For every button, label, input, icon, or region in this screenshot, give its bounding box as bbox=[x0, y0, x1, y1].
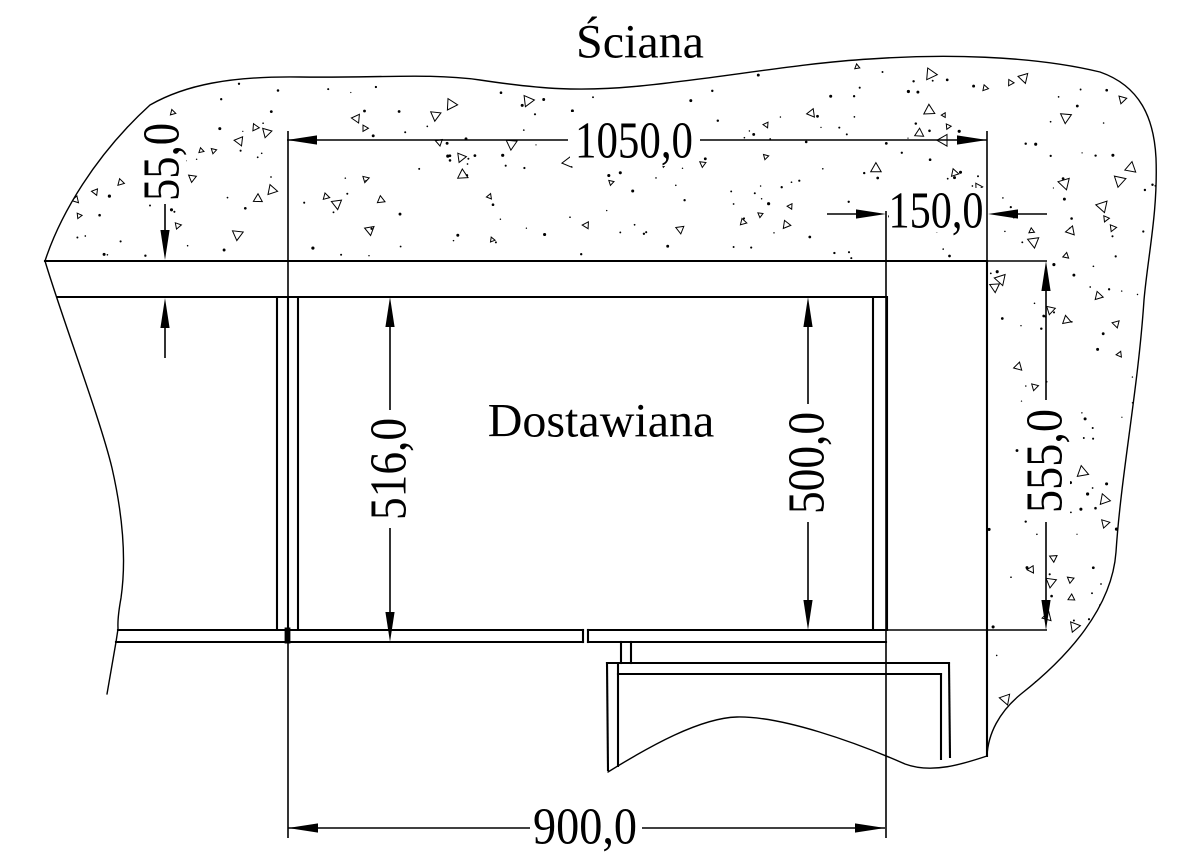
hatch-dot bbox=[1008, 53, 1010, 55]
hatch-triangle bbox=[1116, 351, 1121, 357]
hatch-dot bbox=[523, 167, 525, 169]
hatch-dot bbox=[1053, 311, 1055, 313]
hatch-triangle bbox=[110, 77, 115, 83]
hatch-triangle bbox=[1129, 617, 1139, 627]
hatch-dot bbox=[1130, 691, 1132, 693]
hatch-dot bbox=[1144, 549, 1147, 552]
hatch-triangle bbox=[999, 694, 1009, 705]
hatch-triangle bbox=[175, 223, 181, 229]
hatch-dot bbox=[1034, 303, 1036, 305]
hatch-dot bbox=[791, 181, 793, 183]
dimension-arrowhead bbox=[803, 600, 812, 630]
hatch-dot bbox=[848, 251, 850, 253]
hatch-dot bbox=[704, 157, 707, 160]
hatch-dot bbox=[1144, 189, 1146, 191]
hatch-dot bbox=[929, 158, 932, 161]
hatch-dot bbox=[398, 110, 401, 113]
hatch-triangle bbox=[952, 169, 959, 177]
hatch-dot bbox=[551, 66, 554, 69]
hatch-dot bbox=[1036, 534, 1038, 536]
hatch-dot bbox=[1144, 82, 1146, 84]
hatch-dot bbox=[553, 65, 556, 68]
dimension-arrowhead bbox=[288, 823, 318, 832]
hatch-dot bbox=[1134, 714, 1136, 716]
hatch-dot bbox=[1093, 265, 1095, 267]
hatch-triangle bbox=[331, 200, 341, 210]
hatch-dot bbox=[972, 85, 975, 88]
hatch-dot bbox=[61, 87, 64, 90]
hatch-dot bbox=[614, 71, 617, 74]
hatch-dot bbox=[928, 130, 931, 133]
hatch-triangle bbox=[1046, 578, 1056, 588]
hatch-dot bbox=[619, 231, 621, 233]
hatch-triangle bbox=[764, 155, 769, 160]
hatch-dot bbox=[607, 174, 610, 177]
dimension-label-wall-to-front: 555,0 bbox=[1017, 409, 1074, 513]
hatch-triangle bbox=[542, 72, 548, 77]
hatch-triangle bbox=[924, 104, 935, 114]
hatch-triangle bbox=[1071, 622, 1081, 632]
hatch-dot bbox=[1017, 744, 1020, 747]
hatch-dot bbox=[750, 247, 752, 249]
hatch-triangle bbox=[676, 226, 684, 234]
hatch-dot bbox=[932, 80, 934, 82]
hatch-dot bbox=[1083, 437, 1085, 439]
hatch-dot bbox=[1092, 438, 1094, 440]
hatch-triangle bbox=[1100, 494, 1110, 505]
hatch-dot bbox=[1052, 263, 1055, 266]
hatch-dot bbox=[274, 62, 276, 64]
hatch-dot bbox=[1056, 705, 1059, 708]
hatch-dot bbox=[161, 69, 163, 71]
hatch-dot bbox=[833, 252, 835, 254]
hatch-dot bbox=[854, 116, 856, 118]
hatch-dot bbox=[1142, 612, 1144, 614]
hatch-dot bbox=[859, 87, 861, 89]
hatch-dot bbox=[808, 236, 811, 239]
hatch-triangle bbox=[365, 227, 374, 236]
hatch-triangle bbox=[1061, 114, 1072, 124]
hatch-dot bbox=[270, 110, 273, 113]
hatch-dot bbox=[453, 240, 455, 242]
hatch-dot bbox=[457, 60, 458, 61]
hatch-dot bbox=[1133, 633, 1135, 635]
hatch-dot bbox=[1125, 692, 1128, 695]
hatch-dot bbox=[733, 246, 735, 248]
hatch-dot bbox=[399, 213, 402, 216]
dimension-arrowhead bbox=[957, 135, 987, 144]
hatch-triangle bbox=[95, 122, 104, 131]
hatch-dot bbox=[218, 127, 221, 130]
hatch-dot bbox=[1001, 317, 1004, 320]
hatch-dot bbox=[1007, 710, 1010, 713]
hatch-triangle bbox=[234, 137, 243, 146]
dimension-arrowhead bbox=[803, 297, 812, 327]
hatch-dot bbox=[846, 133, 848, 135]
hatch-dot bbox=[359, 71, 362, 74]
hatch-dot bbox=[363, 110, 366, 113]
hatch-dot bbox=[1091, 592, 1093, 594]
hatch-dot bbox=[1050, 121, 1052, 123]
hatch-triangle bbox=[1096, 201, 1107, 213]
hatch-dot bbox=[1126, 707, 1129, 710]
hatch-triangle bbox=[263, 128, 272, 137]
hatch-dot bbox=[1078, 641, 1079, 642]
hatch-dot bbox=[534, 113, 536, 115]
hatch-triangle bbox=[915, 128, 924, 136]
hatch-dot bbox=[1025, 385, 1027, 387]
hatch-dot bbox=[223, 249, 226, 252]
hatch-dot bbox=[959, 171, 962, 174]
hatch-dot bbox=[93, 124, 95, 126]
hatch-dot bbox=[521, 104, 524, 107]
hatch-dot bbox=[1094, 154, 1096, 156]
hatch-triangle bbox=[170, 110, 175, 115]
hatch-dot bbox=[277, 89, 280, 92]
hatch-dot bbox=[108, 195, 111, 198]
dimension-cabinet-width: 900,0 bbox=[288, 799, 885, 856]
hatch-dot bbox=[643, 233, 645, 235]
hatch-dot bbox=[744, 137, 746, 139]
hatch-dot bbox=[505, 165, 507, 167]
hatch-triangle bbox=[871, 163, 882, 172]
hatch-triangle bbox=[491, 237, 496, 242]
hatch-dot bbox=[838, 127, 840, 129]
hatch-dot bbox=[853, 95, 855, 97]
hatch-dot bbox=[760, 185, 762, 187]
hatch-dot bbox=[1076, 105, 1079, 108]
hatch-dot bbox=[754, 192, 756, 194]
hatch-dot bbox=[1088, 618, 1090, 620]
hatch-dot bbox=[495, 241, 497, 243]
hatch-triangle bbox=[927, 68, 938, 80]
hatch-triangle bbox=[199, 148, 204, 153]
technical-drawing-page: 1050,0 55,0 150,0 516,0 500,0 bbox=[0, 0, 1200, 858]
hatch-dot bbox=[730, 190, 732, 192]
hatch-dot bbox=[631, 189, 634, 192]
hatch-dot bbox=[977, 175, 979, 177]
hatch-dot bbox=[1120, 511, 1123, 514]
hatch-triangle bbox=[363, 176, 369, 182]
hatch-triangle bbox=[524, 96, 534, 107]
hatch-dot bbox=[240, 150, 242, 152]
dimension-label-cabinet-depth: 500,0 bbox=[779, 412, 836, 514]
dimension-arrowhead bbox=[855, 823, 885, 832]
hatch-triangle bbox=[1068, 594, 1075, 600]
hatch-dot bbox=[76, 237, 78, 239]
hatch-dot bbox=[958, 130, 961, 133]
hatch-triangle bbox=[1063, 253, 1069, 259]
hatch-dot bbox=[1092, 427, 1094, 429]
hatch-triangle bbox=[1014, 362, 1022, 370]
hatch-triangle bbox=[1110, 225, 1116, 232]
hatch-dot bbox=[404, 131, 406, 133]
hatch-dot bbox=[340, 254, 342, 256]
hatch-dot bbox=[717, 119, 719, 121]
hatch-triangle bbox=[1066, 226, 1075, 235]
hatch-dot bbox=[767, 202, 770, 205]
hatch-dot bbox=[1096, 702, 1097, 703]
break-lines bbox=[45, 261, 987, 772]
hatch-dot bbox=[1070, 217, 1073, 220]
hatch-triangle bbox=[253, 194, 262, 202]
hatch-dot bbox=[761, 198, 763, 200]
hatch-dot bbox=[1061, 717, 1063, 719]
hatch-dot bbox=[1094, 694, 1096, 696]
hatch-dot bbox=[1120, 543, 1122, 545]
hatch-dot bbox=[675, 185, 677, 187]
hatch-dot bbox=[242, 131, 243, 132]
hatch-dot bbox=[170, 208, 173, 211]
cabinet-label: Dostawiana bbox=[488, 395, 715, 448]
hatch-dot bbox=[1020, 325, 1021, 326]
hatch-dot bbox=[1105, 89, 1108, 92]
hatch-triangle bbox=[1102, 520, 1110, 528]
hatch-triangle bbox=[77, 213, 82, 218]
hatch-dot bbox=[1109, 58, 1111, 60]
hatch-dot bbox=[953, 176, 956, 179]
hatch-triangle bbox=[1047, 306, 1056, 314]
hatch-dot bbox=[1151, 183, 1153, 185]
hatch-dot bbox=[500, 219, 501, 220]
dimension-overall-width: 1050,0 bbox=[287, 113, 987, 170]
section-mark bbox=[285, 628, 291, 644]
hatch-dot bbox=[350, 92, 351, 93]
hatch-dot bbox=[1085, 671, 1086, 672]
hatch-triangle bbox=[941, 113, 945, 118]
hatch-triangle bbox=[700, 162, 706, 168]
hatch-triangle bbox=[783, 220, 791, 228]
hatch-triangle bbox=[268, 185, 278, 195]
hatch-dot bbox=[1050, 155, 1052, 157]
hatch-dot bbox=[262, 122, 264, 124]
hatch-dot bbox=[94, 113, 97, 116]
hatch-dot bbox=[238, 83, 240, 85]
hatch-dot bbox=[915, 122, 917, 124]
hatch-dot bbox=[1021, 400, 1022, 401]
hatch-dot bbox=[1105, 482, 1108, 485]
hatch-dot bbox=[992, 625, 995, 628]
hatch-dot bbox=[1021, 241, 1023, 243]
hatch-dot bbox=[863, 172, 865, 174]
hatch-dot bbox=[388, 53, 390, 55]
hatch-dot bbox=[345, 177, 347, 179]
hatch-dot bbox=[580, 253, 582, 255]
hatch-dot bbox=[885, 142, 888, 145]
hatch-triangle bbox=[1129, 659, 1137, 668]
break-line-left bbox=[45, 261, 124, 694]
hatch-dot bbox=[781, 186, 783, 188]
hatch-triangle bbox=[792, 56, 799, 63]
hatch-dot bbox=[500, 91, 503, 94]
hatch-dot bbox=[634, 224, 636, 226]
dimension-side-clearance: 150,0 bbox=[827, 183, 1047, 240]
hatch-dot bbox=[619, 171, 622, 174]
hatch-dot bbox=[948, 255, 951, 258]
hatch-dot bbox=[327, 88, 329, 90]
hatch-dot bbox=[990, 273, 992, 275]
hatch-dot bbox=[1084, 417, 1087, 420]
hatch-dot bbox=[1139, 563, 1141, 565]
hatch-dot bbox=[1081, 152, 1082, 153]
hatch-dot bbox=[196, 159, 197, 160]
hatch-dot bbox=[1004, 721, 1005, 722]
dimension-arrowhead bbox=[1041, 261, 1050, 291]
hatch-triangle bbox=[787, 204, 792, 210]
hatch-dot bbox=[1111, 154, 1114, 157]
hatch-dot bbox=[946, 79, 949, 82]
dimension-label-overall-width: 1050,0 bbox=[575, 113, 693, 170]
hatch-triangle bbox=[1104, 216, 1110, 222]
dimension-cabinet-depth: 500,0 bbox=[779, 297, 836, 630]
hatch-dot bbox=[375, 86, 377, 88]
hatch-dot bbox=[689, 99, 692, 102]
hatch-dot bbox=[400, 246, 402, 248]
hatch-dot bbox=[1003, 718, 1005, 720]
lower-left-outer bbox=[607, 663, 608, 770]
dimension-arrowhead bbox=[287, 135, 317, 144]
hatch-dot bbox=[749, 130, 750, 131]
hatch-dot bbox=[1142, 667, 1145, 670]
hatch-dot bbox=[592, 96, 594, 98]
hatch-dot bbox=[467, 163, 469, 165]
hatch-dot bbox=[526, 228, 527, 229]
hatch-triangle bbox=[116, 85, 125, 95]
hatch-triangle bbox=[1058, 178, 1069, 189]
hatch-dot bbox=[1002, 197, 1004, 199]
hatch-triangle bbox=[983, 85, 989, 91]
hatch-dot bbox=[907, 137, 908, 138]
hatch-dot bbox=[1103, 616, 1105, 618]
hatch-dot bbox=[711, 90, 713, 92]
hatch-dot bbox=[311, 247, 314, 250]
hatch-dot bbox=[1034, 143, 1037, 146]
hatch-triangle bbox=[377, 196, 385, 203]
hatch-dot bbox=[1115, 255, 1117, 257]
hatch-triangle bbox=[740, 218, 746, 224]
hatch-dot bbox=[542, 98, 545, 101]
hatch-triangle bbox=[1039, 692, 1043, 697]
hatch-dot bbox=[733, 203, 735, 205]
hatch-dot bbox=[492, 203, 495, 206]
hatch-triangle bbox=[1081, 716, 1086, 720]
hatch-dot bbox=[270, 176, 272, 178]
hatch-triangle bbox=[458, 153, 467, 162]
hatch-dot bbox=[907, 90, 910, 93]
hatch-dot bbox=[773, 232, 774, 233]
hatch-dot bbox=[1040, 327, 1042, 329]
hatch-dot bbox=[144, 255, 146, 257]
hatch-dot bbox=[816, 115, 819, 118]
hatch-triangle bbox=[807, 109, 815, 117]
hatch-dot bbox=[1024, 142, 1026, 144]
hatch-dot bbox=[543, 233, 546, 236]
hatch-dot bbox=[98, 214, 101, 217]
hatch-dot bbox=[100, 79, 102, 81]
dimension-label-side-clearance: 150,0 bbox=[889, 183, 984, 240]
hatch-dot bbox=[1143, 611, 1144, 612]
hatch-dot bbox=[339, 52, 340, 53]
hatch-dot bbox=[1102, 332, 1105, 335]
hatch-dot bbox=[1138, 747, 1140, 749]
hatch-dot bbox=[1080, 89, 1082, 91]
hatch-triangle bbox=[351, 114, 359, 123]
hatch-dot bbox=[346, 193, 348, 195]
hatch-dot bbox=[1100, 583, 1102, 585]
hatch-dot bbox=[1120, 733, 1121, 734]
hatch-dot bbox=[418, 168, 420, 170]
hatch-dot bbox=[279, 73, 282, 76]
hatch-dot bbox=[220, 98, 222, 100]
hatch-dot bbox=[1063, 198, 1066, 201]
hatch-dot bbox=[120, 240, 122, 242]
hatch-dot bbox=[876, 177, 879, 180]
hatch-dot bbox=[752, 133, 755, 136]
dimension-arrowhead bbox=[160, 230, 169, 260]
hatch-dot bbox=[1121, 585, 1123, 587]
hatch-dot bbox=[458, 72, 460, 74]
hatch-triangle bbox=[1032, 384, 1039, 391]
hatch-dot bbox=[848, 201, 850, 203]
hatch-dot bbox=[109, 77, 111, 79]
hatch-dot bbox=[605, 79, 607, 81]
hatch-dot bbox=[368, 255, 369, 256]
hatch-dot bbox=[61, 137, 63, 139]
hatch-triangle bbox=[1063, 315, 1071, 323]
dimension-arrowhead bbox=[385, 612, 394, 642]
hatch-dot bbox=[1106, 735, 1109, 738]
dimension-wall-gap: 55,0 bbox=[134, 123, 191, 358]
lower-right-outer bbox=[949, 663, 950, 757]
hatch-dot bbox=[757, 74, 760, 77]
hatch-dot bbox=[1081, 412, 1082, 413]
hatch-dot bbox=[523, 129, 525, 131]
hatch-triangle bbox=[1124, 535, 1132, 543]
hatch-dot bbox=[1072, 274, 1075, 277]
hatch-triangle bbox=[1095, 291, 1103, 299]
hatch-triangle bbox=[1028, 238, 1039, 248]
hatch-dot bbox=[1121, 290, 1122, 291]
hatch-dot bbox=[1076, 534, 1077, 535]
hatch-dot bbox=[655, 177, 657, 179]
hatch-triangle bbox=[990, 284, 1000, 293]
hatch-dot bbox=[850, 257, 852, 259]
hatch-dot bbox=[173, 211, 175, 213]
dimension-label-worktop-depth: 516,0 bbox=[361, 418, 418, 520]
hatch-dot bbox=[1111, 235, 1113, 237]
hatch-dot bbox=[1010, 750, 1011, 751]
hatch-dot bbox=[1092, 566, 1095, 569]
hatch-dot bbox=[464, 71, 466, 73]
hatch-dot bbox=[501, 154, 504, 157]
hatch-dot bbox=[666, 245, 669, 248]
hatch-triangle bbox=[506, 140, 517, 150]
hatch-triangle bbox=[1018, 74, 1028, 84]
hatch-triangle bbox=[1029, 228, 1035, 233]
dimension-arrowhead bbox=[385, 297, 394, 327]
hatch-triangle bbox=[1100, 605, 1109, 616]
hatch-dot bbox=[187, 245, 189, 247]
hatch-dot bbox=[1103, 122, 1105, 124]
hatch-dot bbox=[227, 197, 229, 199]
dimension-arrowhead bbox=[988, 209, 1018, 218]
hatch-dot bbox=[916, 91, 919, 94]
hatch-triangle bbox=[1125, 162, 1136, 173]
hatch-dot bbox=[1053, 187, 1054, 188]
hatch-dot bbox=[1132, 376, 1133, 377]
hatch-dot bbox=[426, 126, 428, 128]
hatch-triangle bbox=[253, 124, 259, 131]
